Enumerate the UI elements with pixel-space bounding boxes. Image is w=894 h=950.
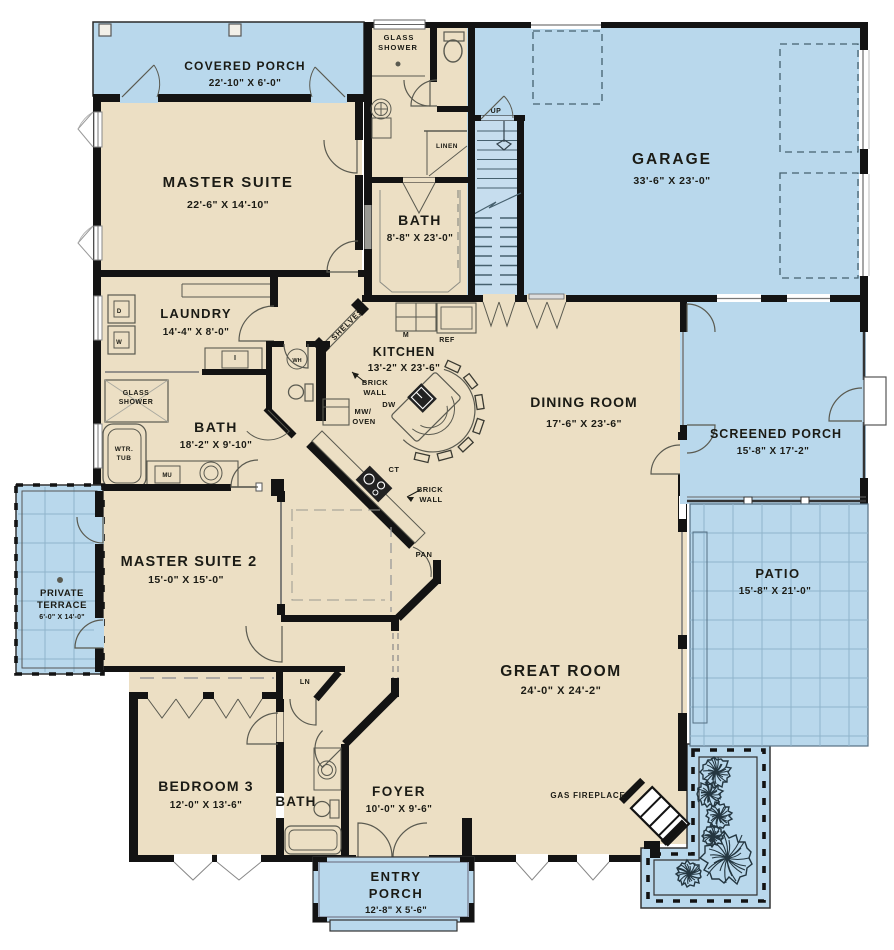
svg-text:15'-8" X 17'-2": 15'-8" X 17'-2" bbox=[737, 446, 810, 457]
svg-text:GARAGE: GARAGE bbox=[632, 151, 712, 168]
svg-text:COVERED PORCH: COVERED PORCH bbox=[184, 59, 306, 73]
svg-text:W: W bbox=[116, 340, 122, 346]
svg-text:OVEN: OVEN bbox=[352, 417, 375, 426]
svg-text:REF: REF bbox=[439, 337, 455, 344]
svg-text:MW/: MW/ bbox=[355, 407, 372, 416]
svg-text:WH: WH bbox=[292, 358, 301, 364]
svg-text:12'-0" X 13'-6": 12'-0" X 13'-6" bbox=[170, 800, 243, 811]
svg-text:TERRACE: TERRACE bbox=[37, 600, 87, 611]
svg-text:BRICK: BRICK bbox=[417, 485, 443, 494]
svg-text:TUB: TUB bbox=[117, 455, 132, 462]
svg-text:MASTER SUITE: MASTER SUITE bbox=[163, 174, 294, 191]
svg-text:WTR.: WTR. bbox=[115, 446, 134, 453]
svg-text:BATH: BATH bbox=[275, 794, 316, 809]
svg-text:MASTER SUITE 2: MASTER SUITE 2 bbox=[121, 554, 258, 570]
svg-text:LINEN: LINEN bbox=[436, 143, 458, 150]
svg-text:15'-8" X 21'-0": 15'-8" X 21'-0" bbox=[739, 586, 812, 597]
svg-text:22'-6" X 14'-10": 22'-6" X 14'-10" bbox=[187, 199, 269, 211]
svg-text:FOYER: FOYER bbox=[372, 784, 426, 799]
svg-text:GREAT ROOM: GREAT ROOM bbox=[500, 663, 622, 680]
svg-text:MU: MU bbox=[162, 473, 171, 479]
svg-text:SHOWER: SHOWER bbox=[378, 43, 418, 52]
svg-text:WALL: WALL bbox=[363, 388, 386, 397]
svg-text:BATH: BATH bbox=[194, 419, 238, 435]
svg-text:LN: LN bbox=[300, 679, 310, 686]
svg-text:M: M bbox=[403, 332, 409, 339]
svg-text:PRIVATE: PRIVATE bbox=[40, 588, 84, 599]
svg-text:18'-2" X 9'-10": 18'-2" X 9'-10" bbox=[180, 440, 253, 451]
svg-text:GLASS: GLASS bbox=[384, 33, 415, 42]
svg-text:GLASS: GLASS bbox=[123, 390, 150, 397]
svg-text:22'-10" X 6'-0": 22'-10" X 6'-0" bbox=[209, 78, 282, 89]
svg-text:PORCH: PORCH bbox=[369, 886, 423, 901]
svg-text:LAUNDRY: LAUNDRY bbox=[160, 306, 231, 321]
svg-text:10'-0" X 9'-6": 10'-0" X 9'-6" bbox=[366, 804, 433, 815]
svg-text:DW: DW bbox=[382, 400, 396, 409]
svg-text:WALL: WALL bbox=[419, 495, 442, 504]
svg-text:DINING ROOM: DINING ROOM bbox=[530, 394, 637, 410]
svg-text:17'-6" X 23'-6": 17'-6" X 23'-6" bbox=[546, 418, 622, 430]
svg-text:PATIO: PATIO bbox=[755, 566, 800, 581]
svg-text:13'-2" X 23'-6": 13'-2" X 23'-6" bbox=[368, 363, 441, 374]
svg-text:PAN: PAN bbox=[416, 550, 433, 559]
svg-text:D: D bbox=[117, 309, 122, 315]
svg-text:12'-8" X 5'-6": 12'-8" X 5'-6" bbox=[365, 905, 427, 916]
svg-text:15'-0" X 15'-0": 15'-0" X 15'-0" bbox=[148, 574, 224, 586]
svg-text:33'-6" X 23'-0": 33'-6" X 23'-0" bbox=[633, 175, 710, 187]
svg-text:UP: UP bbox=[491, 108, 502, 115]
svg-text:CT: CT bbox=[389, 465, 400, 474]
svg-text:SCREENED PORCH: SCREENED PORCH bbox=[710, 427, 842, 441]
svg-text:14'-4" X 8'-0": 14'-4" X 8'-0" bbox=[163, 327, 230, 338]
svg-text:GAS FIREPLACE: GAS FIREPLACE bbox=[550, 791, 625, 800]
svg-text:6'-0" X 14'-0": 6'-0" X 14'-0" bbox=[39, 614, 84, 621]
svg-text:ENTRY: ENTRY bbox=[370, 869, 421, 884]
svg-text:BATH: BATH bbox=[398, 212, 442, 228]
svg-text:8'-8" X 23'-0": 8'-8" X 23'-0" bbox=[387, 233, 454, 244]
svg-text:KITCHEN: KITCHEN bbox=[373, 345, 436, 359]
svg-text:BEDROOM 3: BEDROOM 3 bbox=[158, 778, 254, 794]
svg-text:SHOWER: SHOWER bbox=[119, 399, 154, 406]
svg-text:24'-0" X 24'-2": 24'-0" X 24'-2" bbox=[521, 685, 602, 697]
